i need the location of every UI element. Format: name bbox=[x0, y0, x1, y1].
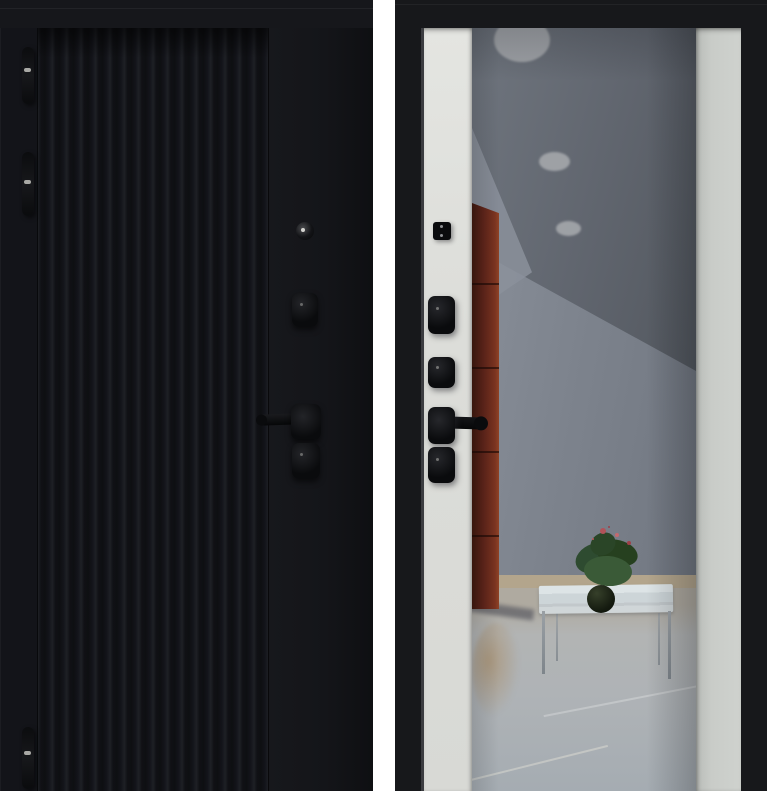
table-leg bbox=[542, 611, 545, 674]
table-leg bbox=[658, 613, 660, 665]
exterior-top-rail bbox=[0, 0, 373, 30]
door-interior-view bbox=[395, 0, 767, 791]
ceiling-light-icon bbox=[556, 221, 581, 236]
lock-cylinder-icon bbox=[296, 222, 314, 240]
table-leg bbox=[668, 611, 671, 679]
plant-flowers bbox=[600, 528, 606, 534]
two-door-product-photo bbox=[0, 0, 767, 791]
interior-panel-right bbox=[696, 28, 741, 791]
exterior-lower-escutcheon bbox=[292, 443, 320, 479]
cabinet-panel-seams bbox=[472, 283, 499, 609]
interior-handle-plate bbox=[428, 407, 455, 444]
exterior-frame-lip bbox=[0, 8, 373, 9]
table-leg bbox=[556, 613, 558, 661]
exterior-handle-plate bbox=[291, 404, 321, 440]
hinge-pin-icon bbox=[24, 68, 31, 72]
reflected-cabinet bbox=[472, 203, 499, 609]
interior-lower-escutcheon bbox=[428, 447, 455, 483]
hinge-top bbox=[22, 47, 34, 104]
hinge-bottom bbox=[22, 727, 34, 789]
plant-pot bbox=[587, 585, 615, 613]
exterior-left-jamb bbox=[0, 28, 38, 791]
full-height-mirror bbox=[472, 28, 696, 791]
interior-middle-escutcheon bbox=[428, 357, 455, 388]
hinge-pin-icon bbox=[24, 751, 31, 755]
night-latch-plate bbox=[433, 222, 451, 240]
hinge-pin-icon bbox=[24, 180, 31, 184]
slat-top-shadow bbox=[38, 28, 268, 58]
interior-upper-escutcheon bbox=[428, 296, 455, 334]
hinge-middle bbox=[22, 152, 34, 216]
ceiling-light-icon bbox=[539, 152, 570, 171]
exterior-slatted-panel bbox=[38, 28, 268, 791]
interior-frame-lip bbox=[395, 4, 767, 5]
door-exterior-view bbox=[0, 0, 373, 791]
exterior-upper-escutcheon bbox=[292, 293, 318, 327]
floor-tan-patch bbox=[472, 623, 520, 718]
